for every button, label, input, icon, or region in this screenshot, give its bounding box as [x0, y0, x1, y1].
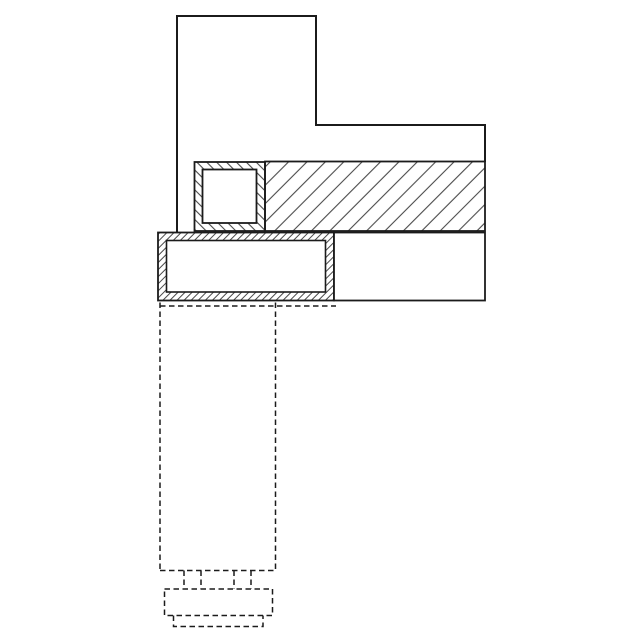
hidden-base-plate — [165, 589, 273, 616]
hidden-foot — [174, 616, 264, 627]
square-tube-bore — [203, 170, 257, 224]
drawing-canvas — [0, 0, 640, 640]
rect-tube-bore — [167, 241, 326, 293]
right-frame-rect — [334, 233, 485, 301]
hatched-slab — [265, 162, 485, 232]
technical-drawing — [0, 0, 640, 640]
